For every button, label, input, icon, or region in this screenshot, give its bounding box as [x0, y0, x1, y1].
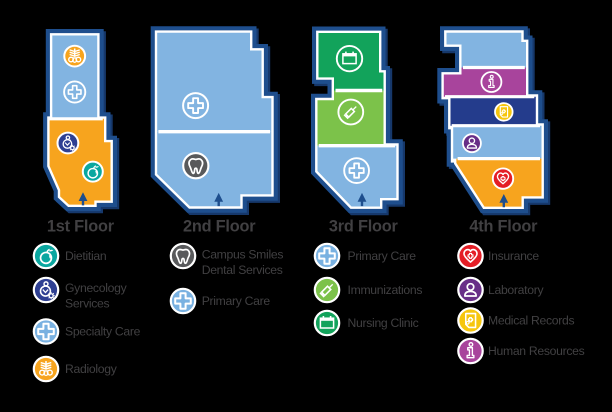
svg-text:Dental Services: Dental Services — [202, 263, 283, 277]
svg-text:Laboratory: Laboratory — [488, 283, 544, 297]
svg-text:Human Resources: Human Resources — [488, 344, 585, 358]
svg-text:Radiology: Radiology — [65, 362, 118, 376]
svg-text:1st Floor: 1st Floor — [47, 218, 115, 236]
svg-text:Nursing Clinic: Nursing Clinic — [348, 316, 419, 330]
svg-text:Specialty Care: Specialty Care — [65, 325, 141, 339]
svg-text:Primary Care: Primary Care — [348, 249, 417, 263]
svg-text:3rd Floor: 3rd Floor — [329, 218, 399, 236]
svg-text:Gynecology: Gynecology — [65, 281, 128, 295]
svg-text:4th Floor: 4th Floor — [469, 218, 538, 236]
svg-text:Services: Services — [65, 297, 110, 311]
svg-text:2nd Floor: 2nd Floor — [183, 218, 256, 236]
svg-text:Dietitian: Dietitian — [65, 249, 106, 263]
svg-text:Primary Care: Primary Care — [202, 294, 271, 308]
svg-text:Insurance: Insurance — [488, 249, 539, 263]
svg-text:Immunizations: Immunizations — [348, 283, 423, 297]
svg-text:Medical Records: Medical Records — [488, 314, 574, 328]
svg-text:Campus Smiles: Campus Smiles — [202, 248, 284, 262]
